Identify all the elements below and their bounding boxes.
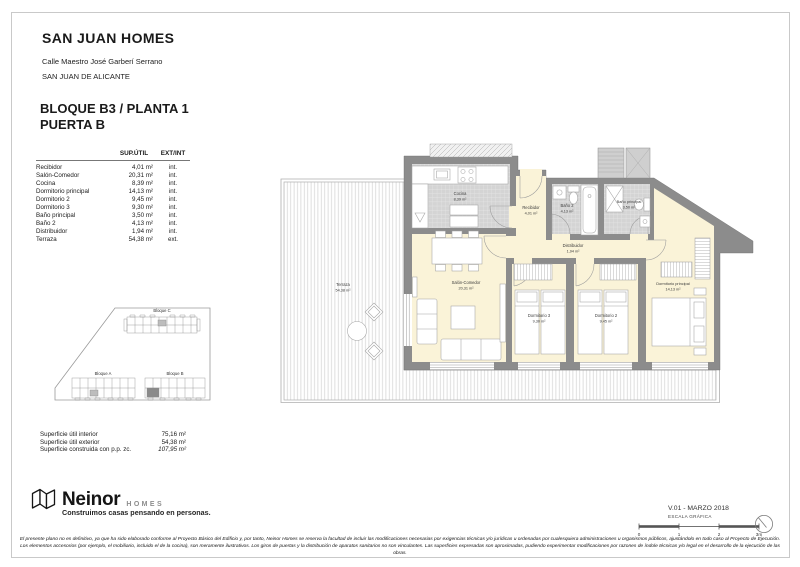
table-row: Recibidor4,01 m²int. xyxy=(36,164,190,172)
summary-row: Superficie construida con p.p. zc.107,95… xyxy=(40,446,186,454)
table-row: Dormitorio 39,30 m²int. xyxy=(36,204,190,212)
svg-text:9,45 m²: 9,45 m² xyxy=(600,320,614,324)
summary-row: Superficie útil interior75,16 m² xyxy=(40,431,186,439)
stair-core xyxy=(598,148,650,178)
svg-text:Salón-Comedor: Salón-Comedor xyxy=(452,280,481,285)
city-line: SAN JUAN DE ALICANTE xyxy=(42,72,130,81)
table-row: Dormitorio 29,45 m²int. xyxy=(36,196,190,204)
table-row: Cocina8,39 m²int. xyxy=(36,180,190,188)
brand-suffix: HOMES xyxy=(126,501,164,508)
col-sup-util: SUP.ÚTIL xyxy=(115,150,153,158)
bloque-c-building xyxy=(124,315,200,333)
scale-bar: 0 1 2 3m xyxy=(637,522,767,538)
svg-text:Dormitorio 3: Dormitorio 3 xyxy=(528,313,551,318)
svg-text:9,30 m²: 9,30 m² xyxy=(533,320,547,324)
bloque-b-building xyxy=(145,378,205,400)
svg-text:Dormitorio principal: Dormitorio principal xyxy=(656,281,690,286)
north-arrow-icon xyxy=(753,513,775,535)
svg-text:14,13 m²: 14,13 m² xyxy=(666,288,682,292)
table-row: Salón-Comedor20,31 m²int. xyxy=(36,172,190,180)
scale-title: ESCALA GRÁFICA xyxy=(668,514,712,519)
page-title: SAN JUAN HOMES xyxy=(42,30,174,46)
areas-table: SUP.ÚTIL EXT/INT Recibidor4,01 m²int. Sa… xyxy=(36,149,190,244)
brand-tagline: Construimos casas pensando en personas. xyxy=(62,508,211,517)
bloque-a-label: Bloque A xyxy=(95,371,112,376)
table-row: Terraza54,38 m²ext. xyxy=(36,236,190,244)
svg-text:Dormitorio 2: Dormitorio 2 xyxy=(595,313,618,318)
bloque-a-building xyxy=(72,378,135,400)
block-title: BLOQUE B3 / PLANTA 1 PUERTA B xyxy=(40,101,189,133)
neinor-logo-icon xyxy=(30,487,57,511)
highlighted-unit xyxy=(147,388,159,397)
svg-text:4,01 m²: 4,01 m² xyxy=(525,212,539,216)
floor-plan: Cocina 8,39 m² Recibidor 4,01 m² Baño 2 … xyxy=(275,135,775,440)
site-plan-map: Bloque C Bloque A Bloque B xyxy=(48,293,243,418)
table-row: Baño 24,13 m²int. xyxy=(36,220,190,228)
areas-table-header: SUP.ÚTIL EXT/INT xyxy=(36,149,190,159)
table-rule xyxy=(36,160,190,161)
svg-text:Distribuidor: Distribuidor xyxy=(563,243,584,248)
svg-text:20,31 m²: 20,31 m² xyxy=(459,287,475,291)
address-line: Calle Maestro José Garberí Serrano xyxy=(42,57,162,66)
svg-text:Baño 2: Baño 2 xyxy=(561,203,575,208)
svg-text:Cocina: Cocina xyxy=(454,191,467,196)
svg-text:4,13 m²: 4,13 m² xyxy=(561,210,575,214)
svg-text:8,39 m²: 8,39 m² xyxy=(454,198,468,202)
summary-row: Superficie útil exterior54,38 m² xyxy=(40,439,186,447)
svg-text:54,38 m²: 54,38 m² xyxy=(336,289,352,293)
svg-text:3,50 m²: 3,50 m² xyxy=(623,206,637,210)
legal-disclaimer: El presente plano no es definitivo, ya q… xyxy=(18,537,782,557)
svg-text:1,94 m²: 1,94 m² xyxy=(567,250,581,254)
svg-text:Terraza: Terraza xyxy=(336,282,350,287)
table-row: Dormitorio principal14,13 m²int. xyxy=(36,188,190,196)
section-hatch xyxy=(430,144,512,157)
table-row: Baño principal3,50 m²int. xyxy=(36,212,190,220)
surface-summary: Superficie útil interior75,16 m² Superfi… xyxy=(40,431,186,454)
svg-text:Recibidor: Recibidor xyxy=(522,205,540,210)
bloque-b-label: Bloque B xyxy=(167,371,184,376)
disclaimer-line-2: Los elementos accesorios (por ejemplo, e… xyxy=(18,544,782,558)
table-row: Distribuidor1,94 m²int. xyxy=(36,228,190,236)
svg-text:Baño principal: Baño principal xyxy=(617,199,642,204)
version-label: V.01 - MARZO 2018 xyxy=(668,505,729,512)
disclaimer-line-1: El presente plano no es definitivo, ya q… xyxy=(18,537,782,544)
col-ext-int: EXT/INT xyxy=(156,150,190,158)
bloque-c-label: Bloque C xyxy=(153,308,170,313)
